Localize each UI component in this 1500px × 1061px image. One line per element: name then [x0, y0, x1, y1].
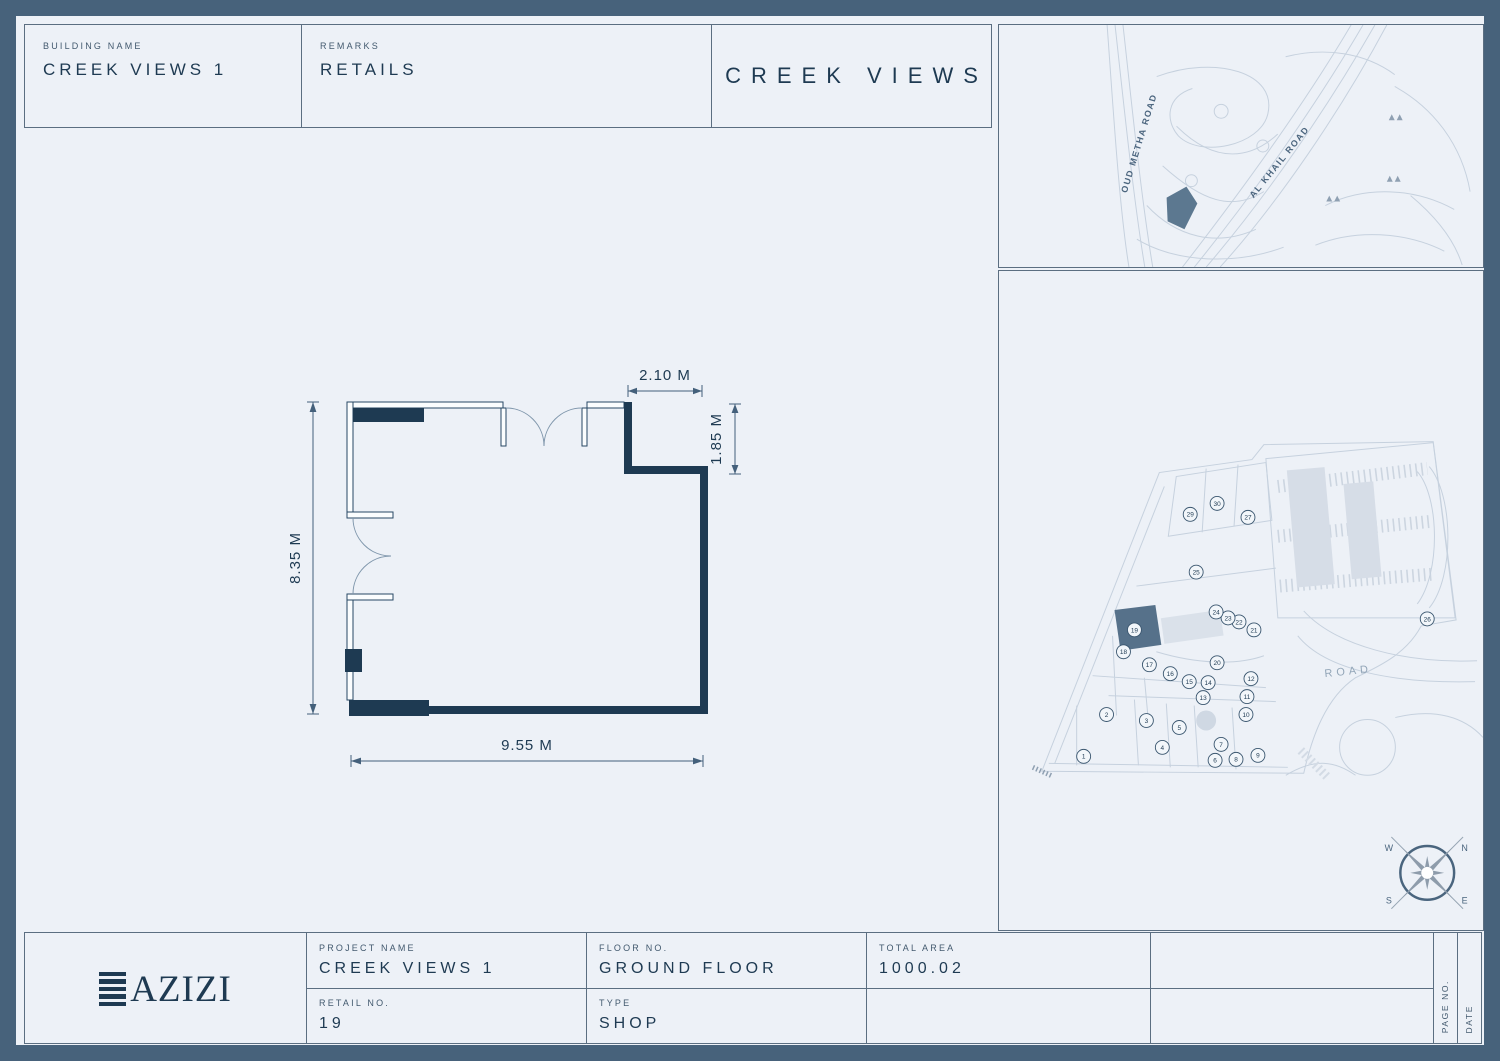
unit-marker-number: 14 — [1205, 680, 1213, 687]
unit-marker-number: 26 — [1424, 616, 1432, 623]
unit-marker-number: 5 — [1177, 725, 1181, 732]
dim-right: 1.85 M — [708, 413, 725, 465]
sheet-title: CREEK VIEWS — [715, 63, 988, 89]
unit-marker-number: 20 — [1213, 660, 1221, 667]
floor-plan-drawing: 8.35 M 9.55 M 2.10 M 1.85 M — [266, 346, 786, 786]
header-table: BUILDING NAME CREEK VIEWS 1 REMARKS RETA… — [24, 24, 992, 128]
unit-marker-number: 22 — [1235, 619, 1243, 626]
page-no-strip: PAGE NO. — [1433, 933, 1457, 1043]
azizi-logo: AZIZI — [99, 971, 232, 1008]
unit-marker-number: 2 — [1105, 712, 1109, 719]
retail-no-cell: RETAIL NO. 19 — [306, 988, 390, 1033]
thin-walls — [347, 402, 624, 700]
unit-marker-number: 10 — [1242, 712, 1250, 719]
unit-marker-number: 3 — [1145, 718, 1149, 725]
unit-marker-number: 24 — [1213, 609, 1221, 616]
dim-bottom: 9.55 M — [501, 737, 553, 754]
site-boundary — [1033, 442, 1456, 777]
remarks-cell: REMARKS RETAILS — [302, 24, 712, 128]
divider — [306, 988, 1433, 989]
floor-no-value: GROUND FLOOR — [599, 960, 778, 978]
unit-marker-number: 15 — [1186, 679, 1194, 686]
site-buildings — [1049, 463, 1288, 770]
unit-markers: 1234567891011121314151617181920212223242… — [1077, 496, 1435, 767]
unit-marker-number: 12 — [1247, 676, 1255, 683]
dim-top: 2.10 M — [639, 367, 691, 384]
unit-marker-number: 19 — [1131, 627, 1139, 634]
logo-cell: AZIZI — [25, 933, 306, 1045]
type-cell: TYPE SHOP — [586, 988, 660, 1033]
unit-marker-number: 18 — [1120, 649, 1128, 656]
azizi-logo-text: AZIZI — [130, 971, 232, 1008]
dim-left: 8.35 M — [287, 532, 304, 584]
building-name-label: BUILDING NAME — [43, 41, 301, 51]
unit-marker-number: 17 — [1146, 662, 1154, 669]
page-no-label: PAGE NO. — [1440, 980, 1450, 1033]
unit-marker-number: 16 — [1167, 671, 1175, 678]
parking-structure — [1266, 443, 1455, 618]
compass-e: E — [1462, 896, 1469, 906]
site-roads — [1286, 611, 1483, 777]
total-area-value: 1000.02 — [879, 960, 965, 978]
road-label-oud-metha: OUD METHA ROAD — [1119, 92, 1159, 194]
unit-marker-number: 9 — [1256, 753, 1260, 760]
site-plan-drawing: ROAD 12345678910111213141516171819202122… — [999, 271, 1483, 930]
unit-marker-number: 7 — [1219, 742, 1223, 749]
location-map-drawing: OUD METHA ROAD AL KHAIL ROAD — [999, 25, 1483, 267]
site-road-label: ROAD — [1324, 663, 1373, 680]
sheet-paper: BUILDING NAME CREEK VIEWS 1 REMARKS RETA… — [16, 16, 1484, 1045]
unit-marker-number: 27 — [1244, 515, 1252, 522]
unit-marker-number: 8 — [1234, 757, 1238, 764]
solid-walls — [345, 402, 708, 716]
azizi-logo-bars-icon — [99, 972, 126, 1006]
location-map-panel: OUD METHA ROAD AL KHAIL ROAD — [998, 24, 1484, 268]
project-name-value: CREEK VIEWS 1 — [319, 960, 495, 978]
unit-marker-number: 23 — [1224, 615, 1232, 622]
unit-marker-number: 29 — [1187, 512, 1195, 519]
door-swing-arcs — [353, 408, 582, 594]
building-name-value: CREEK VIEWS 1 — [43, 60, 301, 80]
total-area-label: TOTAL AREA — [879, 943, 965, 953]
site-location-marker — [1167, 187, 1198, 230]
retail-no-value: 19 — [319, 1015, 390, 1033]
project-name-cell: PROJECT NAME CREEK VIEWS 1 — [306, 933, 495, 978]
retail-no-label: RETAIL NO. — [319, 998, 390, 1008]
unit-marker-number: 25 — [1193, 570, 1201, 577]
unit-marker-number: 4 — [1161, 745, 1165, 752]
total-area-cell: TOTAL AREA 1000.02 — [866, 933, 965, 978]
type-label: TYPE — [599, 998, 660, 1008]
building-name-cell: BUILDING NAME CREEK VIEWS 1 — [24, 24, 302, 128]
unit-marker-number: 30 — [1213, 501, 1221, 508]
compass-rose: W N S E — [1385, 837, 1469, 909]
floor-no-label: FLOOR NO. — [599, 943, 778, 953]
site-plan-panel: ROAD 12345678910111213141516171819202122… — [998, 270, 1484, 931]
date-label: DATE — [1464, 1005, 1474, 1033]
unit-marker-number: 11 — [1244, 694, 1251, 701]
unit-marker-number: 6 — [1213, 758, 1217, 765]
date-strip: DATE — [1457, 933, 1481, 1043]
floor-no-cell: FLOOR NO. GROUND FLOOR — [586, 933, 778, 978]
project-name-label: PROJECT NAME — [319, 943, 495, 953]
compass-n: N — [1461, 843, 1468, 853]
compass-s: S — [1386, 896, 1393, 906]
unit-marker-number: 21 — [1250, 627, 1258, 634]
drawing-sheet: { "header": { "building_name_label": "BU… — [0, 0, 1500, 1061]
title-block: AZIZI PROJECT NAME CREEK VIEWS 1 FLOOR N… — [24, 932, 1482, 1044]
compass-w: W — [1385, 843, 1394, 853]
unit-marker-number: 13 — [1200, 695, 1208, 702]
unit-marker-number: 1 — [1082, 754, 1086, 761]
type-value: SHOP — [599, 1015, 660, 1033]
sheet-title-cell: CREEK VIEWS — [712, 24, 992, 128]
remarks-label: REMARKS — [320, 41, 711, 51]
remarks-value: RETAILS — [320, 60, 711, 80]
map-tree-icons — [1326, 114, 1402, 201]
